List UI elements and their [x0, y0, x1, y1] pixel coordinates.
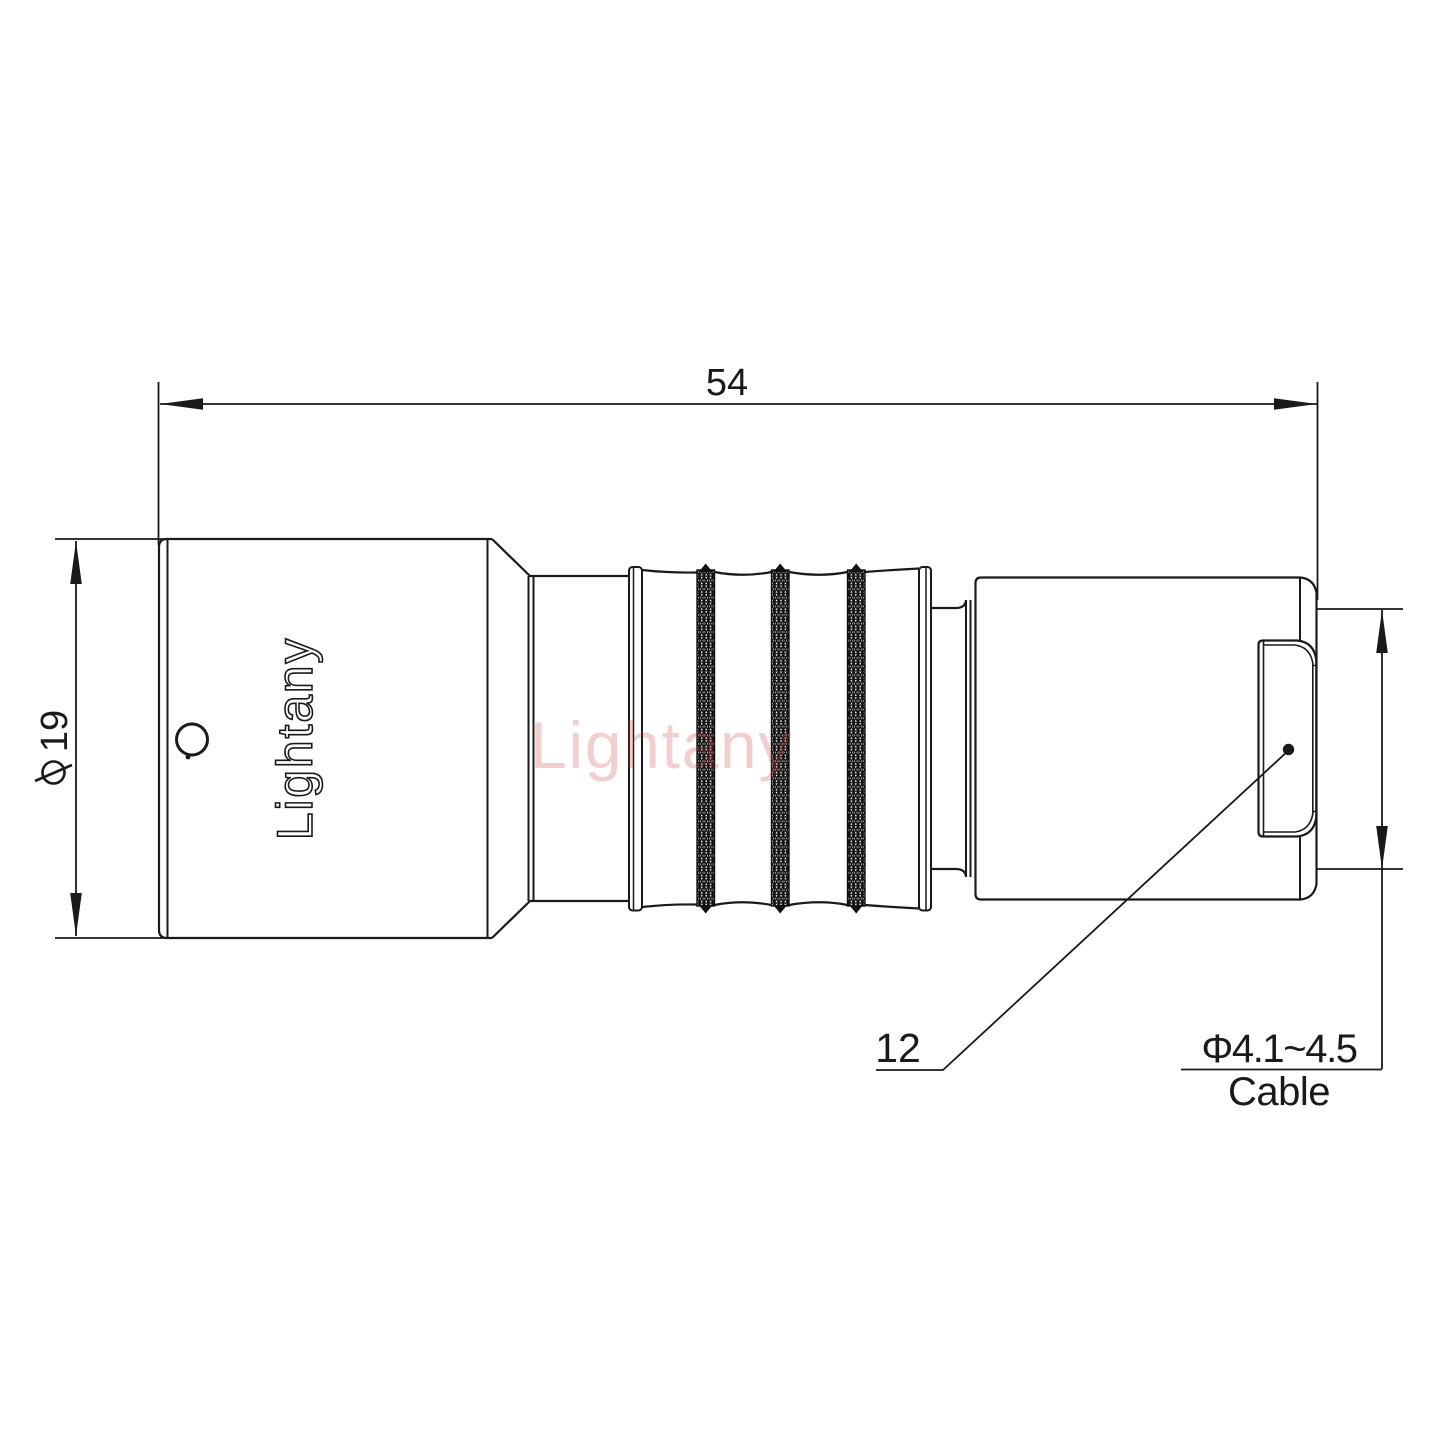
svg-text:Lightany: Lightany: [267, 637, 323, 840]
svg-text:19: 19: [34, 710, 76, 752]
svg-text:Lightany: Lightany: [530, 708, 793, 782]
svg-text:54: 54: [706, 362, 748, 404]
svg-text:Φ4.1~4.5: Φ4.1~4.5: [1201, 1027, 1356, 1071]
svg-text:Cable: Cable: [1228, 1070, 1330, 1114]
svg-text:12: 12: [875, 1025, 921, 1071]
